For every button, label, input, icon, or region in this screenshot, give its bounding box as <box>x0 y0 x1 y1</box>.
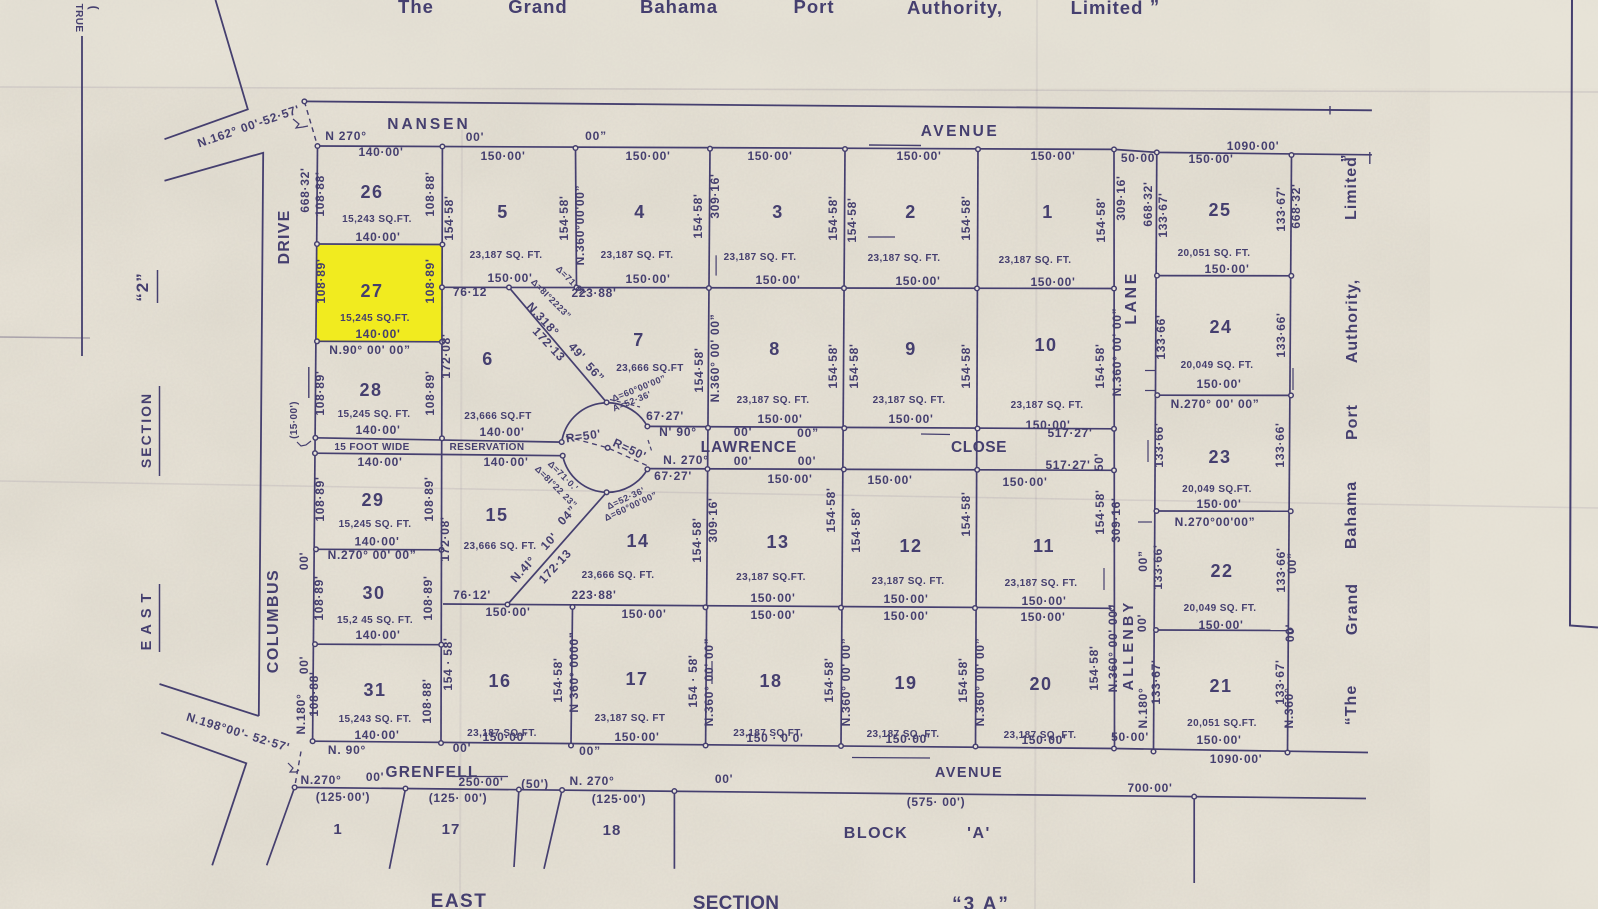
svg-text:23,187 SQ. FT.: 23,187 SQ. FT. <box>601 250 674 261</box>
svg-text:154·58': 154·58' <box>826 195 840 240</box>
svg-text:140·00': 140·00' <box>355 423 400 437</box>
svg-text:00”: 00” <box>1285 552 1299 573</box>
svg-text:154·58': 154·58' <box>1087 645 1101 690</box>
svg-text:27: 27 <box>360 281 383 301</box>
svg-text:150·00': 150·00' <box>755 273 800 287</box>
svg-text:00”: 00” <box>1136 550 1150 571</box>
svg-text:150·00': 150·00' <box>1030 275 1075 289</box>
svg-text:N.270° 00' 00”: N.270° 00' 00” <box>328 548 417 562</box>
svg-text:N.180°: N.180° <box>1136 687 1150 728</box>
svg-text:133·67': 133·67' <box>1149 659 1163 704</box>
svg-text:150·00': 150·00' <box>896 149 941 163</box>
svg-text:21: 21 <box>1209 676 1232 696</box>
svg-text:18: 18 <box>759 671 782 691</box>
svg-text:140·00': 140·00' <box>355 327 400 341</box>
svg-text:108·88': 108·88' <box>313 171 327 216</box>
svg-text:154·58': 154·58' <box>551 657 565 702</box>
svg-text:N' 90°: N' 90° <box>659 425 697 439</box>
svg-text:(125·00'): (125·00') <box>592 792 647 806</box>
svg-text:Grand: Grand <box>508 0 567 17</box>
svg-text:150·00': 150·00' <box>767 472 812 486</box>
svg-text:150·00': 150·00' <box>1020 610 1065 624</box>
svg-text:N.360° 00' 00”: N.360° 00' 00” <box>1110 308 1124 397</box>
svg-text:133·66': 133·66' <box>1273 422 1287 467</box>
svg-text:108·88': 108·88' <box>423 171 437 216</box>
svg-text:150·00': 150·00' <box>487 271 532 285</box>
svg-text:“3 A”: “3 A” <box>952 894 1010 909</box>
svg-text:154·58': 154·58' <box>847 343 861 388</box>
svg-text:140·00': 140·00' <box>357 455 402 469</box>
svg-text:20,049 SQ. FT.: 20,049 SQ. FT. <box>1181 360 1254 371</box>
svg-text:23,187 SQ.FT.: 23,187 SQ.FT. <box>736 572 806 583</box>
svg-text:150·00': 150·00' <box>888 412 933 426</box>
svg-text:250·00': 250·00' <box>458 775 503 789</box>
svg-text:Port: Port <box>794 0 835 17</box>
svg-text:133·67': 133·67' <box>1156 192 1170 237</box>
svg-text:150·00': 150·00' <box>625 149 670 163</box>
svg-text:140·00': 140·00' <box>479 425 524 439</box>
svg-text:N.270°: N.270° <box>300 773 341 787</box>
svg-text:140·00': 140·00' <box>354 728 399 742</box>
svg-text:133·66': 133·66' <box>1274 312 1288 357</box>
svg-text:150 · 0 0': 150 · 0 0' <box>746 731 803 745</box>
svg-text:50·00: 50·00 <box>1121 151 1155 165</box>
svg-text:23,187 SQ. FT.: 23,187 SQ. FT. <box>872 576 945 587</box>
svg-text:(125·00'): (125·00') <box>316 790 371 804</box>
svg-text:00': 00' <box>1135 614 1149 632</box>
svg-text:N. 270°: N. 270° <box>663 453 709 467</box>
svg-text:133·66': 133·66' <box>1151 544 1165 589</box>
svg-text:23,187 SQ. FT: 23,187 SQ. FT <box>595 713 666 724</box>
svg-text:140·00': 140·00' <box>355 628 400 642</box>
svg-text:'A': 'A' <box>967 825 991 842</box>
svg-text:20,051 SQ.FT.: 20,051 SQ.FT. <box>1187 718 1257 729</box>
svg-text:140·00': 140·00' <box>483 455 528 469</box>
svg-text:133·66': 133·66' <box>1154 314 1168 359</box>
svg-text:SECTION: SECTION <box>693 893 780 909</box>
svg-text:150·00': 150·00' <box>1196 377 1241 391</box>
svg-text:517·27': 517·27' <box>1047 426 1092 440</box>
svg-text:67·27': 67·27' <box>654 469 692 483</box>
svg-text:140·00': 140·00' <box>358 145 403 159</box>
svg-text:150·00': 150·00' <box>1002 475 1047 489</box>
svg-text:154·58': 154·58' <box>959 491 973 536</box>
svg-text:23,187 SQ. FT.: 23,187 SQ. FT. <box>999 255 1072 266</box>
svg-text:76·12': 76·12' <box>453 588 491 602</box>
svg-text:N 270°: N 270° <box>325 129 367 143</box>
svg-text:150·00': 150·00' <box>750 608 795 622</box>
svg-text:EAST: EAST <box>139 588 155 651</box>
svg-text:N.360°00'00”: N.360°00'00” <box>573 185 587 266</box>
svg-text:50': 50' <box>1092 453 1106 471</box>
svg-text:15,245 SQ. FT.: 15,245 SQ. FT. <box>339 519 412 530</box>
svg-text:150·00': 150·00' <box>1196 497 1241 511</box>
svg-text:17: 17 <box>442 821 461 838</box>
svg-text:668·32': 668·32' <box>298 167 312 212</box>
svg-text:00”: 00” <box>585 129 607 143</box>
svg-text:154·58': 154·58' <box>692 347 706 392</box>
svg-text:150·00': 150·00' <box>1030 149 1075 163</box>
svg-text:15,245 SQ. FT.: 15,245 SQ. FT. <box>338 409 411 420</box>
svg-text:15 FOOT WIDE: 15 FOOT WIDE <box>334 442 409 453</box>
svg-text:BLOCK: BLOCK <box>844 825 908 842</box>
svg-text:23,187 SQ. FT.: 23,187 SQ. FT. <box>1005 578 1078 589</box>
svg-text:N.270° 00' 00”: N.270° 00' 00” <box>1171 397 1260 411</box>
svg-text:150·00': 150·00' <box>747 149 792 163</box>
svg-text:1090·00': 1090·00' <box>1210 752 1263 766</box>
svg-text:517·27': 517·27' <box>1045 458 1090 472</box>
svg-text:19: 19 <box>894 673 917 693</box>
svg-text:(: ( <box>87 6 101 11</box>
svg-text:108·89': 108·89' <box>312 575 326 620</box>
svg-text:20: 20 <box>1029 674 1052 694</box>
svg-text:6: 6 <box>482 349 494 369</box>
svg-text:150·00': 150·00' <box>885 732 930 746</box>
svg-text:Bahama: Bahama <box>1343 481 1360 549</box>
svg-text:309·16': 309·16' <box>1109 497 1123 542</box>
svg-text:N. 270°: N. 270° <box>569 774 614 788</box>
svg-text:30: 30 <box>362 583 385 603</box>
svg-text:150·00': 150·00' <box>1021 733 1066 747</box>
svg-text:700·00': 700·00' <box>1127 781 1172 795</box>
svg-text:00': 00' <box>366 770 384 784</box>
svg-text:108·88': 108·88' <box>420 678 434 723</box>
svg-text:1: 1 <box>1042 202 1054 222</box>
svg-text:20,051 SQ. FT.: 20,051 SQ. FT. <box>1178 248 1251 259</box>
svg-text:50·00': 50·00' <box>1111 730 1149 744</box>
svg-text:309·16': 309·16' <box>706 497 720 542</box>
svg-text:15,245 SQ.FT.: 15,245 SQ.FT. <box>340 313 410 324</box>
svg-text:00': 00' <box>1283 624 1297 642</box>
svg-text:23,666 SQ. FT.: 23,666 SQ. FT. <box>582 570 655 581</box>
svg-text:154·58': 154·58' <box>1093 343 1107 388</box>
svg-text:154·58': 154·58' <box>822 657 836 702</box>
svg-text:LANE: LANE <box>1123 271 1140 325</box>
svg-text:00': 00' <box>466 130 485 144</box>
svg-text:00': 00' <box>734 454 753 468</box>
svg-text:11: 11 <box>1033 536 1055 556</box>
svg-text:23,187 SQ. FT.: 23,187 SQ. FT. <box>1011 400 1084 411</box>
svg-text:150·00': 150·00' <box>895 274 940 288</box>
svg-text:(125· 00'): (125· 00') <box>429 791 488 805</box>
svg-text:15,243 SQ.FT.: 15,243 SQ.FT. <box>342 214 412 225</box>
svg-text:309·16': 309·16' <box>708 173 722 218</box>
svg-text:150·00': 150·00' <box>480 149 525 163</box>
svg-text:154·58': 154·58' <box>845 197 859 242</box>
svg-text:26: 26 <box>360 182 383 202</box>
svg-text:N.180°: N.180° <box>294 693 308 734</box>
svg-text:154·58': 154·58' <box>1094 197 1108 242</box>
svg-text:DRIVE: DRIVE <box>276 210 293 265</box>
svg-text:23,666 SQ.FT: 23,666 SQ.FT <box>616 363 684 374</box>
svg-text:N.360° 00' 00”: N.360° 00' 00” <box>702 638 716 727</box>
svg-text:12: 12 <box>899 536 922 556</box>
svg-text:The: The <box>398 0 434 17</box>
svg-text:14: 14 <box>626 531 649 551</box>
svg-text:AVENUE: AVENUE <box>935 765 1003 781</box>
svg-text:SECTION: SECTION <box>138 392 154 468</box>
svg-text:133·66': 133·66' <box>1152 422 1166 467</box>
svg-text:150·00': 150·00' <box>883 609 928 623</box>
svg-text:154·58': 154·58' <box>849 507 863 552</box>
svg-text:76·12: 76·12 <box>453 285 487 299</box>
svg-text:Authority,: Authority, <box>1344 279 1361 363</box>
svg-text:154 · 58': 154 · 58' <box>441 637 455 690</box>
svg-text:150·00': 150·00' <box>867 473 912 487</box>
svg-text:ALLENBY: ALLENBY <box>1121 600 1137 691</box>
svg-text:CLOSE: CLOSE <box>951 439 1007 456</box>
svg-text:16: 16 <box>488 671 511 691</box>
svg-text:140·00': 140·00' <box>355 230 400 244</box>
svg-text:TRUE: TRUE <box>73 4 84 33</box>
svg-text:23: 23 <box>1208 447 1231 467</box>
svg-text:154·58': 154·58' <box>442 195 456 240</box>
svg-text:154·58': 154·58' <box>690 517 704 562</box>
svg-text:223·88': 223·88' <box>571 588 616 602</box>
svg-text:154·58': 154·58' <box>959 343 973 388</box>
svg-text:154·58': 154·58' <box>826 343 840 388</box>
svg-text:20,049 SQ.FT.: 20,049 SQ.FT. <box>1182 484 1252 495</box>
svg-text:15: 15 <box>485 505 508 525</box>
svg-text:1090·00': 1090·00' <box>1227 139 1280 153</box>
svg-text:N 360° 0000”: N 360° 0000” <box>567 631 581 712</box>
svg-text:N.360° 00' 00”: N.360° 00' 00” <box>973 638 987 727</box>
svg-text:COLUMBUS: COLUMBUS <box>265 569 282 673</box>
svg-text:150·00': 150·00' <box>1204 262 1249 276</box>
svg-text:00”: 00” <box>797 426 819 440</box>
svg-text:17: 17 <box>625 669 648 689</box>
svg-text:108·89': 108·89' <box>423 370 437 415</box>
svg-text:668·32': 668·32' <box>1289 183 1303 228</box>
svg-text:23,187 SQ. FT.: 23,187 SQ. FT. <box>873 395 946 406</box>
svg-text:13: 13 <box>766 532 789 552</box>
svg-text:00': 00' <box>297 552 311 570</box>
svg-text:154·58': 154·58' <box>824 487 838 532</box>
svg-text:Limited: Limited <box>1071 0 1144 18</box>
svg-text:108·89': 108·89' <box>313 476 327 521</box>
svg-text:154·58': 154·58' <box>557 195 571 240</box>
svg-text:Limited: Limited <box>1343 156 1360 220</box>
svg-text:18: 18 <box>603 822 622 839</box>
svg-text:154 · 58': 154 · 58' <box>686 654 700 707</box>
svg-text:00”: 00” <box>579 744 601 758</box>
svg-text:8: 8 <box>769 339 781 359</box>
svg-text:RESERVATION: RESERVATION <box>450 442 525 453</box>
svg-text:N.360° 00' 00”: N.360° 00' 00” <box>1106 604 1120 693</box>
svg-text:22: 22 <box>1210 561 1233 581</box>
svg-text:150·00': 150·00' <box>750 591 795 605</box>
svg-text:150·00': 150·00' <box>883 592 928 606</box>
svg-text:00': 00' <box>715 772 733 786</box>
svg-text:108·89': 108·89' <box>421 575 435 620</box>
svg-text:31: 31 <box>363 680 386 700</box>
svg-text:“The: “The <box>1343 685 1360 725</box>
svg-text:2: 2 <box>905 202 917 222</box>
svg-text:154·58': 154·58' <box>691 193 705 238</box>
svg-text:NANSEN: NANSEN <box>387 116 470 133</box>
svg-text:Port: Port <box>1344 404 1361 440</box>
svg-text:Authority,: Authority, <box>907 0 1003 18</box>
svg-text:154·58': 154·58' <box>959 195 973 240</box>
svg-text:”: ” <box>1339 154 1356 163</box>
svg-text:150·00': 150·00' <box>757 412 802 426</box>
svg-text:23,187 SQ. FT.: 23,187 SQ. FT. <box>868 253 941 264</box>
svg-text:23,187 SQ. FT.: 23,187 SQ. FT. <box>470 250 543 261</box>
svg-text:150·00': 150·00' <box>1198 618 1243 632</box>
svg-text:N.360° 00' 00”: N.360° 00' 00” <box>708 314 722 403</box>
svg-text:9: 9 <box>905 339 917 359</box>
svg-text:00': 00' <box>734 425 753 439</box>
svg-text:23,187 SQ. FT.: 23,187 SQ. FT. <box>737 395 810 406</box>
svg-text:EAST: EAST <box>431 891 488 909</box>
svg-text:150·00': 150·00' <box>621 607 666 621</box>
svg-text:5: 5 <box>497 202 509 222</box>
svg-text:00': 00' <box>453 741 472 755</box>
svg-text:67·27': 67·27' <box>646 409 684 423</box>
svg-text:23,666 SQ.FT: 23,666 SQ.FT <box>464 411 532 422</box>
svg-text:24: 24 <box>1209 317 1232 337</box>
svg-text:00': 00' <box>297 656 311 674</box>
svg-text:150·00': 150·00' <box>482 730 527 744</box>
svg-text:Grand: Grand <box>1344 583 1361 635</box>
svg-text:10: 10 <box>1034 335 1057 355</box>
svg-text:150·00': 150·00' <box>1196 733 1241 747</box>
svg-text:3: 3 <box>772 202 784 222</box>
svg-text:140·00': 140·00' <box>354 535 399 549</box>
svg-text:108·89': 108·89' <box>423 258 437 303</box>
svg-text:15,2 45 SQ. FT.: 15,2 45 SQ. FT. <box>337 615 413 626</box>
svg-text:N. 90°: N. 90° <box>328 743 366 757</box>
svg-text:108·88': 108·88' <box>307 671 321 716</box>
svg-text:309·16': 309·16' <box>1114 175 1128 220</box>
svg-text:172·08': 172·08' <box>438 516 452 561</box>
svg-text:AVENUE: AVENUE <box>921 123 999 140</box>
svg-text:108·89': 108·89' <box>313 370 327 415</box>
svg-text:”: ” <box>1150 0 1160 17</box>
svg-text:N.270°00'00”: N.270°00'00” <box>1175 515 1256 529</box>
svg-text:(575· 00'): (575· 00') <box>907 795 966 809</box>
svg-text:(50'): (50') <box>521 777 549 791</box>
svg-text:4: 4 <box>634 202 646 222</box>
svg-text:108·89': 108·89' <box>314 258 328 303</box>
svg-text:154·58': 154·58' <box>1093 489 1107 534</box>
svg-text:150·00': 150·00' <box>625 272 670 286</box>
svg-text:154·58': 154·58' <box>956 657 970 702</box>
svg-text:“2”: “2” <box>133 272 152 301</box>
svg-text:172·08': 172·08' <box>439 333 453 378</box>
svg-text:1: 1 <box>333 821 342 838</box>
svg-text:150·00': 150·00' <box>485 605 530 619</box>
svg-text:00': 00' <box>798 454 817 468</box>
svg-text:29: 29 <box>361 490 384 510</box>
svg-text:15,243 SQ. FT.: 15,243 SQ. FT. <box>339 714 412 725</box>
svg-text:150·00': 150·00' <box>1021 594 1066 608</box>
svg-text:150·00': 150·00' <box>1188 152 1233 166</box>
svg-text:25: 25 <box>1208 200 1231 220</box>
svg-text:N.360° 00' 00”: N.360° 00' 00” <box>839 638 853 727</box>
svg-text:7: 7 <box>633 330 645 350</box>
svg-text:23,666 SQ. FT.: 23,666 SQ. FT. <box>464 541 537 552</box>
svg-text:28: 28 <box>359 380 382 400</box>
svg-text:N.90° 00' 00”: N.90° 00' 00” <box>329 343 410 357</box>
svg-text:(15·00'): (15·00') <box>289 401 300 439</box>
svg-text:23,187 SQ. FT.: 23,187 SQ. FT. <box>724 252 797 263</box>
svg-text:20,049 SQ. FT.: 20,049 SQ. FT. <box>1184 603 1257 614</box>
svg-text:668·32': 668·32' <box>1141 181 1155 226</box>
svg-text:133·67': 133·67' <box>1274 186 1288 231</box>
svg-text:Bahama: Bahama <box>640 0 718 17</box>
svg-text:108·89': 108·89' <box>422 476 436 521</box>
svg-text:N.360°: N.360° <box>1282 687 1296 728</box>
svg-text:150·00': 150·00' <box>614 730 659 744</box>
